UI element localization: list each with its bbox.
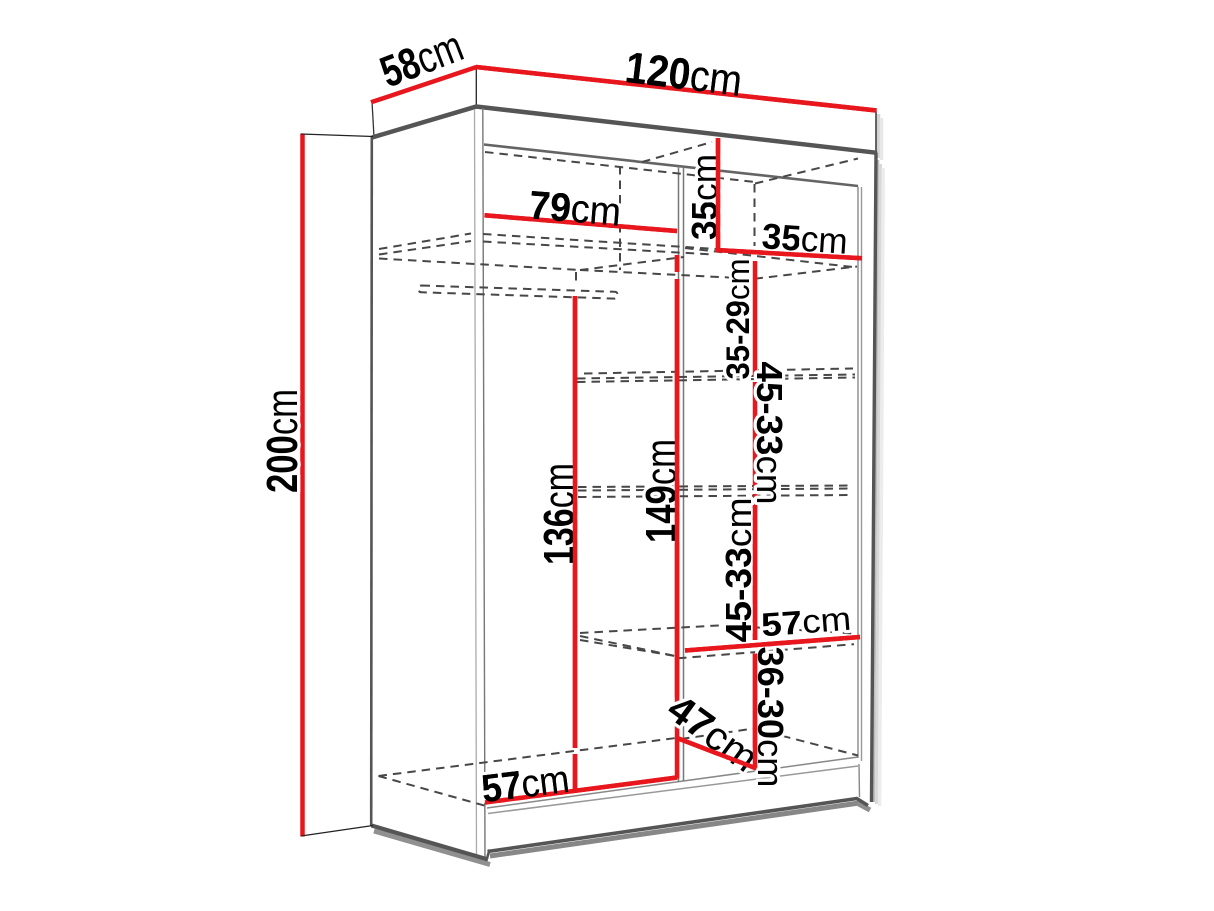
svg-text:79cm: 79cm bbox=[527, 183, 622, 234]
svg-text:200cm: 200cm bbox=[258, 389, 307, 493]
svg-text:45-33cm: 45-33cm bbox=[749, 362, 790, 505]
